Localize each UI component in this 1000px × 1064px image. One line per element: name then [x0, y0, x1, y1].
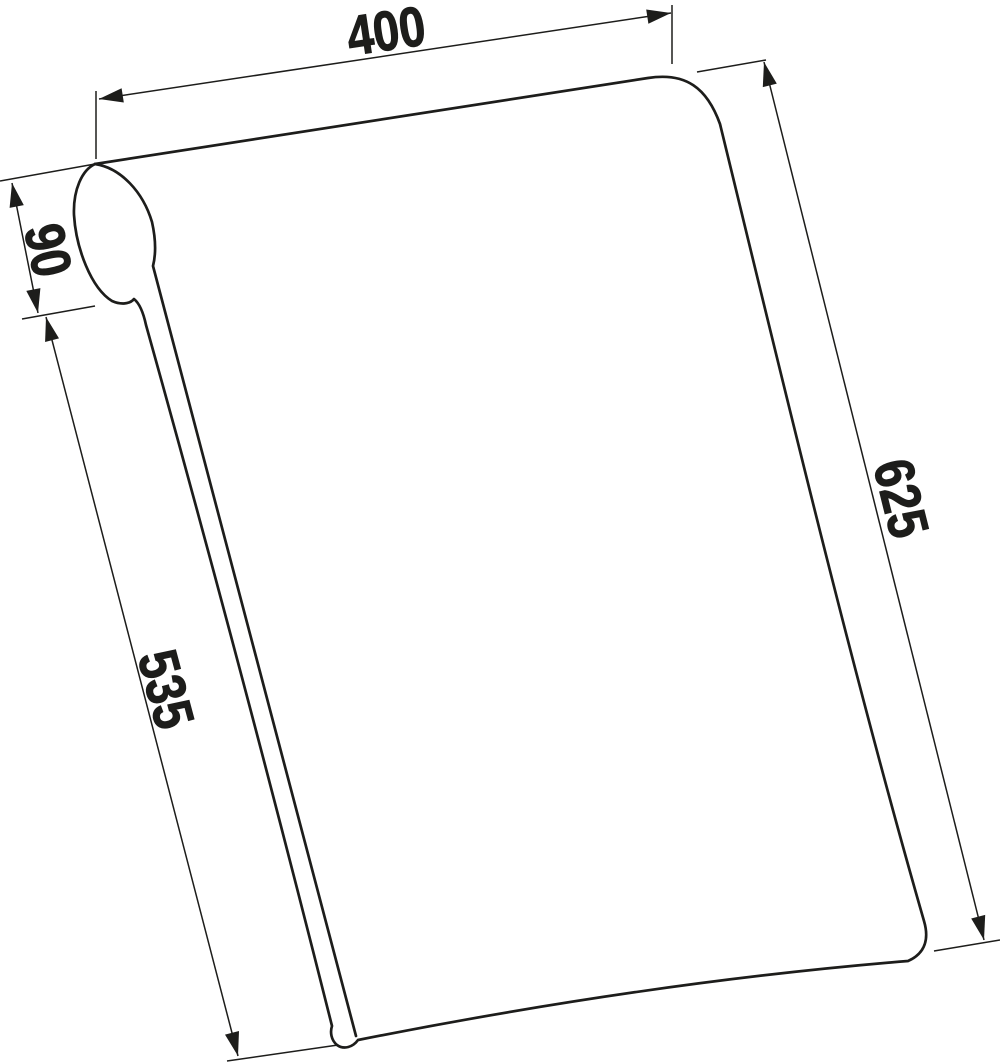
dimension-drawing: 400 90 535 625 [0, 0, 1000, 1064]
dimension-top-width: 400 [96, 0, 672, 159]
dimension-side-edge: 625 [697, 60, 1000, 951]
arrowhead-top [763, 62, 777, 87]
extension-line-bottom [227, 1045, 338, 1061]
arrowhead-top [45, 317, 59, 342]
dimension-label-front-edge: 535 [126, 643, 207, 735]
dimension-label-top-width: 400 [343, 0, 430, 68]
dimension-roll-depth: 90 [0, 164, 95, 319]
extension-line-bottom [934, 940, 1000, 951]
arrowhead-bottom [971, 915, 985, 940]
arrowhead-bottom [26, 288, 40, 313]
dimension-label-roll-depth: 90 [12, 218, 84, 282]
arrowhead-left [99, 88, 124, 102]
panel [74, 77, 926, 1048]
panel-outline [74, 77, 926, 1048]
panel-roll-inner-edge [95, 164, 356, 1036]
dimension-label-side-edge: 625 [861, 452, 941, 543]
technical-drawing-canvas: 400 90 535 625 [0, 0, 1000, 1064]
extension-line-top [697, 60, 766, 72]
arrowhead-top [10, 183, 24, 208]
extension-line-middle [22, 306, 95, 319]
arrowhead-right [646, 10, 671, 24]
dimension-front-edge: 535 [45, 317, 338, 1061]
arrowhead-bottom [225, 1031, 239, 1056]
